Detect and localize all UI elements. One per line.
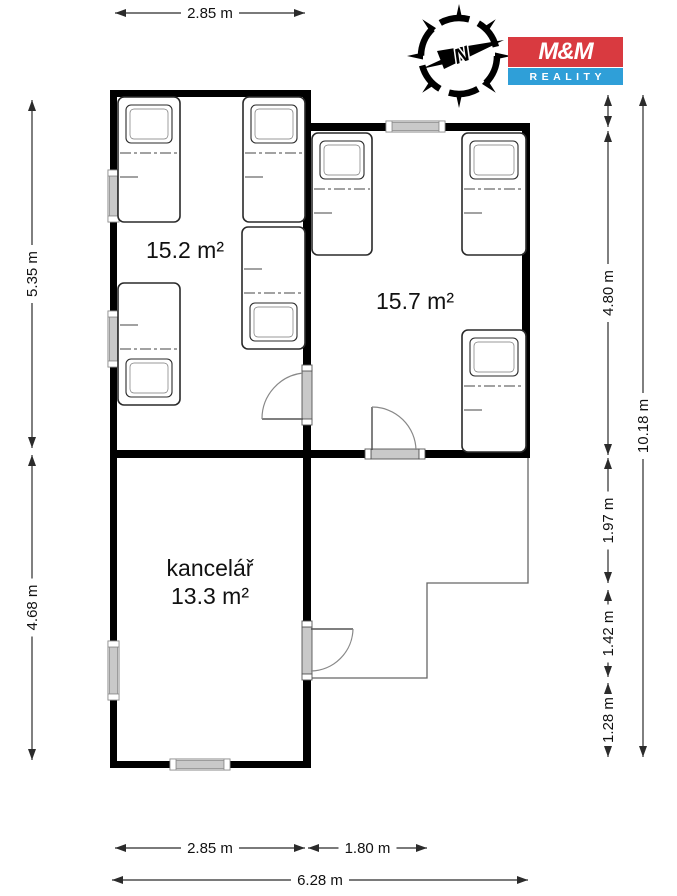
dim-arrowhead [604, 572, 612, 583]
dim-arrowhead [604, 590, 612, 601]
window-glass [392, 123, 439, 131]
door-swing-arc [372, 407, 416, 450]
window-glass [176, 761, 224, 769]
dim-arrowhead [604, 666, 612, 677]
dim-arrowhead [115, 844, 126, 852]
dim-arrowhead [604, 746, 612, 757]
room-label: 15.2 m² [146, 237, 224, 263]
door-cap [302, 419, 312, 425]
open-area-outline [311, 458, 528, 678]
mm-reality-logo: M&M REALITY [508, 37, 623, 85]
room-label: 13.3 m² [171, 583, 249, 609]
wall [110, 90, 117, 170]
door-cap [302, 621, 312, 627]
logo-reality-text: REALITY [508, 68, 623, 85]
wall [110, 450, 371, 458]
dim-label: 4.80 m [600, 270, 617, 316]
dim-arrowhead [416, 844, 427, 852]
window-glass [110, 647, 118, 694]
dim-arrowhead [294, 9, 305, 17]
dim-arrowhead [639, 95, 647, 106]
dim-arrowhead [604, 116, 612, 127]
wall [445, 123, 530, 131]
dim-label: 1.28 m [600, 697, 617, 743]
dim-label: 1.97 m [600, 498, 617, 544]
room-label: 15.7 m² [376, 288, 454, 314]
door-cap [365, 449, 371, 459]
dim-arrowhead [28, 455, 36, 466]
dim-arrowhead [604, 131, 612, 142]
window-glass [110, 317, 118, 361]
wall [303, 674, 311, 768]
dim-label: 2.85 m [187, 840, 233, 857]
bed-pillow [470, 141, 518, 179]
dim-arrowhead [604, 444, 612, 455]
dim-label: 5.35 m [24, 251, 41, 297]
dim-label: 1.42 m [600, 611, 617, 657]
bed-pillow [251, 105, 297, 143]
floor-plan-drawing: 15.2 m²15.7 m²kancelář13.3 m²2.85 m5.35 … [0, 0, 677, 896]
wall [110, 90, 310, 97]
wall [110, 761, 170, 768]
window-cap [108, 641, 119, 647]
window-cap [439, 121, 445, 132]
dim-arrowhead [28, 100, 36, 111]
room-label: kancelář [167, 555, 255, 581]
door-sill [302, 627, 312, 674]
dim-label: 4.68 m [24, 585, 41, 631]
dim-arrowhead [112, 876, 123, 884]
dim-arrowhead [639, 746, 647, 757]
dim-label: 6.28 m [297, 872, 343, 889]
bed-pillow [320, 141, 364, 179]
wall [110, 700, 117, 768]
floor-plan-canvas: 15.2 m²15.7 m²kancelář13.3 m²2.85 m5.35 … [0, 0, 677, 896]
dim-arrowhead [604, 458, 612, 469]
dim-label: 2.85 m [187, 5, 233, 22]
bed-pillow [250, 303, 297, 341]
dim-label: 10.18 m [635, 399, 652, 453]
dim-arrowhead [28, 437, 36, 448]
window-cap [108, 694, 119, 700]
compass-tick-icon [456, 4, 463, 20]
dim-label: 1.80 m [345, 840, 391, 857]
bed-pillow [126, 359, 172, 397]
door-cap [419, 449, 425, 459]
door-sill [302, 370, 312, 420]
dim-arrowhead [115, 9, 126, 17]
dim-arrowhead [604, 683, 612, 694]
door-swing-arc [262, 373, 303, 419]
door-swing-arc [311, 629, 353, 671]
door-cap [302, 674, 312, 680]
dim-arrowhead [294, 844, 305, 852]
window-cap [224, 759, 230, 770]
bed-pillow [470, 338, 518, 376]
wall [110, 367, 117, 641]
dim-arrowhead [604, 95, 612, 106]
door-sill [371, 449, 419, 459]
logo-mm-text: M&M [508, 37, 623, 67]
dim-arrowhead [517, 876, 528, 884]
bed-pillow [126, 105, 172, 143]
compass-tick-icon [456, 92, 463, 108]
wall [230, 761, 310, 768]
wall [110, 222, 117, 311]
dim-arrowhead [28, 749, 36, 760]
wall [305, 123, 386, 131]
compass-tick-icon [407, 53, 423, 60]
door-cap [302, 365, 312, 371]
window-cap [386, 121, 392, 132]
dim-arrowhead [308, 844, 319, 852]
window-cap [170, 759, 176, 770]
window-glass [110, 176, 118, 216]
